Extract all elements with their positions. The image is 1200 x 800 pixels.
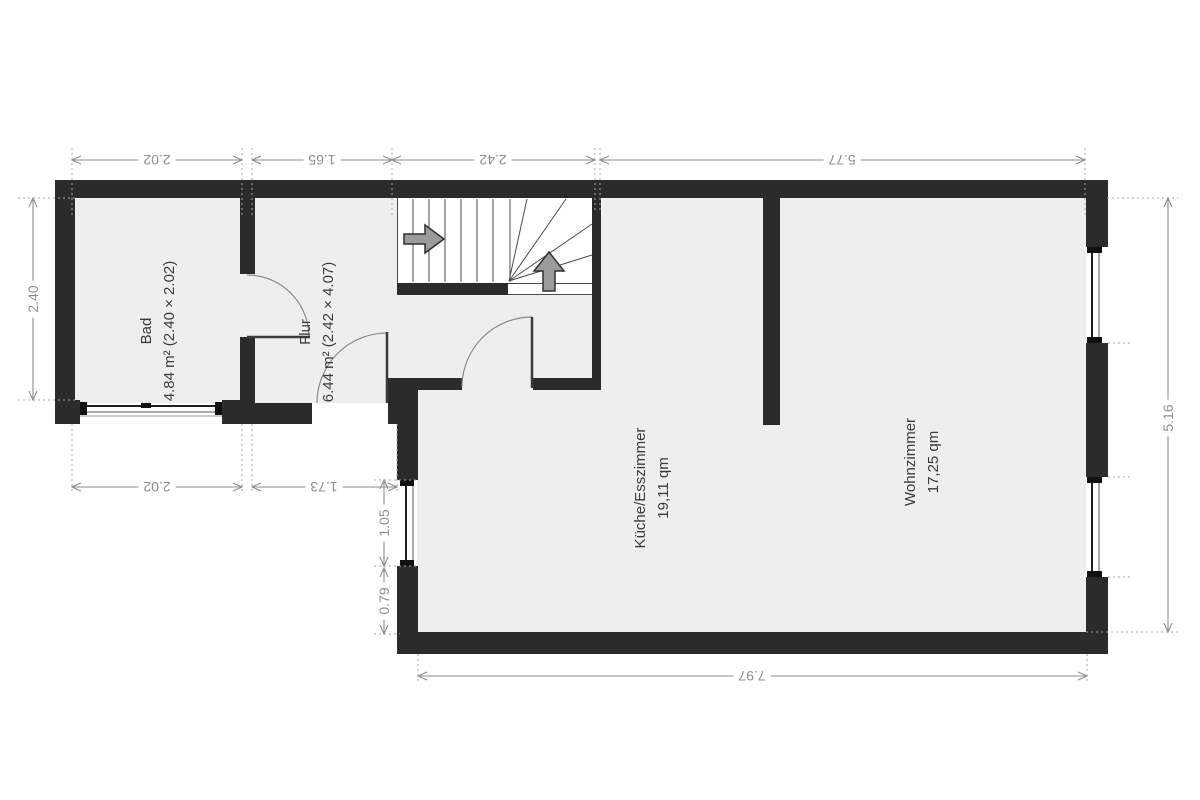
floor-plan: 2.02 1.65 2.42 5.77 2.40 2.02 1.73 1.05 … <box>0 0 1200 800</box>
room-name: Bad <box>138 318 155 345</box>
room-area: 19,11 qm <box>652 428 675 549</box>
dim-top-right: 5.77 <box>823 152 860 168</box>
window-left-step <box>400 480 414 566</box>
dim-left-window: 1.05 <box>376 504 392 541</box>
dim-bottom-main: 7.97 <box>733 668 770 684</box>
stair-arrow-up-icon <box>534 252 564 291</box>
room-name: Wohnzimmer <box>902 418 919 506</box>
room-area: 4.84 m² (2.40 × 2.02) <box>158 261 181 402</box>
room-label-kueche: Küche/Esszimmer 19,11 qm <box>629 428 676 549</box>
dim-bottom-flur: 1.73 <box>305 479 342 495</box>
window-bad <box>80 402 222 416</box>
dim-top-bad: 2.02 <box>138 152 175 168</box>
dim-bottom-bad: 2.02 <box>138 479 175 495</box>
dim-top-flur: 1.65 <box>303 152 340 168</box>
dim-top-stairs: 2.42 <box>474 152 511 168</box>
room-label-wohnzimmer: Wohnzimmer 17,25 qm <box>899 418 946 506</box>
door-arcs <box>247 275 532 403</box>
room-label-bad: Bad 4.84 m² (2.40 × 2.02) <box>135 261 182 402</box>
room-area: 6.44 m² (2.42 × 4.07) <box>317 262 340 403</box>
window-right-lower <box>1087 477 1102 577</box>
door-arc-kueche <box>462 317 532 387</box>
room-name: Küche/Esszimmer <box>632 428 649 549</box>
dim-left-lower-wall: 0.79 <box>376 582 392 619</box>
room-name: Flur <box>297 319 314 345</box>
stair-arrow-right-icon <box>404 225 444 253</box>
window-right-upper <box>1087 247 1102 343</box>
dim-left-bad: 2.40 <box>25 280 41 317</box>
room-label-flur: Flur 6.44 m² (2.42 × 4.07) <box>294 262 341 403</box>
door-leaves <box>247 317 532 403</box>
room-area: 17,25 qm <box>922 418 945 506</box>
dimension-lines <box>29 156 1172 680</box>
dim-right-main: 5.16 <box>1160 399 1176 436</box>
